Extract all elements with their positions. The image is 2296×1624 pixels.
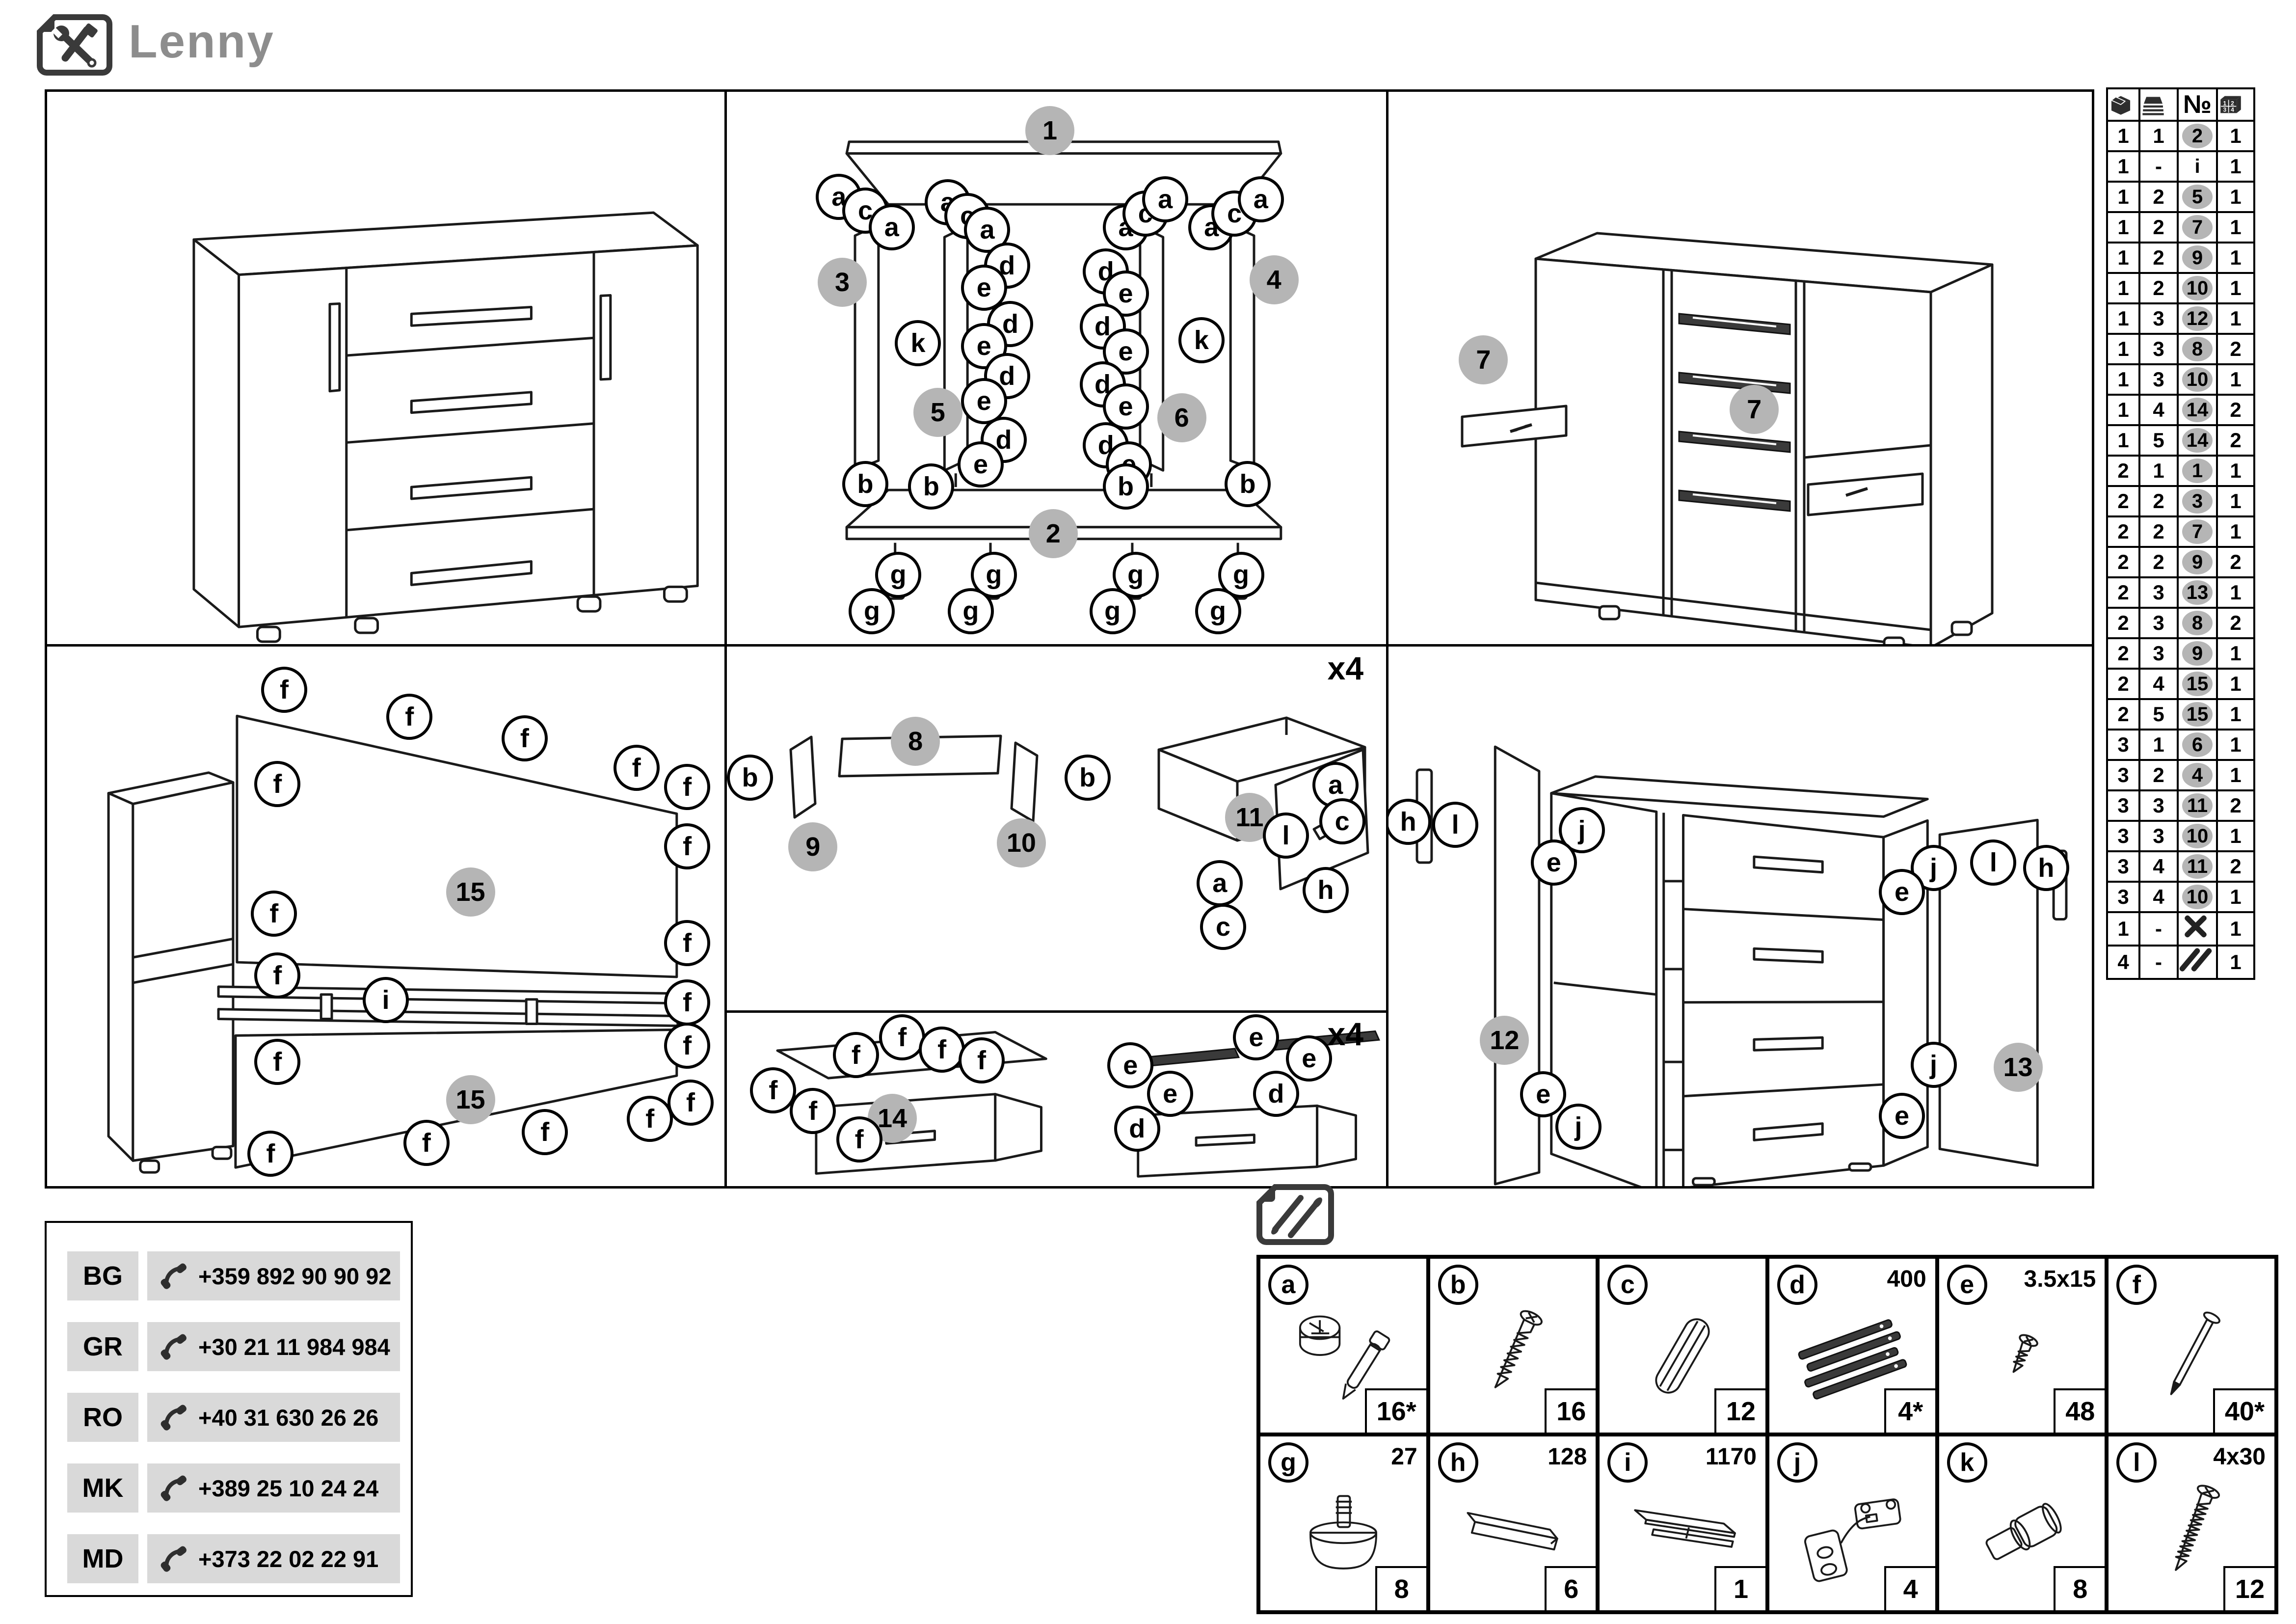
part-number-badge: 9 [2182, 641, 2213, 666]
callout: a [1197, 860, 1243, 906]
part-number-cell: 15 [2178, 699, 2217, 730]
sheet-number-cell: 4 [2139, 669, 2178, 699]
callout: l [1970, 839, 2016, 886]
quantity-badge: 16* [1365, 1388, 1428, 1435]
callout: 15 [446, 1075, 495, 1124]
quantity-cell: 1 [2217, 882, 2254, 912]
part-number-badge: 3 [2182, 489, 2213, 514]
box-number-cell: 2 [2107, 516, 2139, 547]
box-number-cell: 2 [2107, 608, 2139, 638]
box-number-cell: 3 [2107, 821, 2139, 851]
callout: f [403, 1120, 450, 1166]
callout: f [614, 745, 660, 791]
quantity-badge: 12 [2223, 1566, 2276, 1612]
part-number-cell: 2 [2178, 121, 2217, 151]
parts-table-row: 3 3 11 2 [2107, 790, 2254, 821]
quantity-cell: 1 [2217, 212, 2254, 243]
quantity-cell: 1 [2217, 730, 2254, 760]
part-number-badge: 9 [2182, 245, 2213, 270]
callout: e [1531, 839, 1577, 886]
box-number-cell: 3 [2107, 882, 2139, 912]
sheet-number-cell: 4 [2139, 882, 2178, 912]
part-number-badge: 4 [2182, 763, 2213, 787]
callout: f [251, 891, 297, 937]
quantity-badge: 8 [2054, 1566, 2107, 1612]
box-number-cell: 1 [2107, 273, 2139, 303]
sheet-number-cell: 1 [2139, 121, 2178, 151]
quantity-badge: 12 [1714, 1388, 1767, 1435]
part-letter-badge: c [1607, 1265, 1648, 1305]
panel-carcass-slides: 77 [1388, 92, 2092, 644]
phone-row: MK +389 25 10 24 24 [67, 1463, 400, 1513]
quantity-cell: 1 [2217, 577, 2254, 608]
part-number-cell: 9 [2178, 243, 2217, 273]
parts-table-header-row: № 1234 [2107, 88, 2254, 121]
part-number-cell: 14 [2178, 395, 2217, 425]
hardware-cell-i: i 1170 1 [1598, 1435, 1767, 1612]
callout: 6 [1157, 393, 1206, 442]
panel-exploded-carcass: 123456acaacaacaacadedededededededekkbbbb… [727, 92, 1388, 644]
hardware-cell-g: g 27 8 [1258, 1435, 1428, 1612]
part-spec: 3.5x15 [2024, 1266, 2096, 1293]
callout: e [1147, 1071, 1193, 1117]
phone-row: RO +40 31 630 26 26 [67, 1393, 400, 1442]
part-letter-badge: j [1777, 1442, 1817, 1483]
sheet-number-cell: - [2139, 946, 2178, 979]
part-number-badge [2182, 947, 2213, 973]
callout: 2 [1029, 509, 1078, 558]
quantity-cell: 1 [2217, 821, 2254, 851]
phone-row: BG +359 892 90 90 92 [67, 1251, 400, 1300]
callout: d [1114, 1106, 1160, 1152]
callout: f [522, 1109, 568, 1155]
box-number-cell: 2 [2107, 486, 2139, 516]
parts-table-row: 1 3 8 2 [2107, 334, 2254, 364]
part-letter-badge: e [1947, 1265, 1987, 1305]
callout: g [849, 588, 895, 634]
sheet-number-cell: 3 [2139, 334, 2178, 364]
part-number-cell: 9 [2178, 638, 2217, 669]
part-number-cell [2178, 946, 2217, 979]
sheets-icon [2139, 88, 2178, 121]
support-phone-box: BG +359 892 90 90 92 GR [45, 1221, 413, 1597]
part-number-cell: 10 [2178, 364, 2217, 395]
box-number-cell: 1 [2107, 151, 2139, 182]
svg-text:3: 3 [2223, 107, 2226, 113]
parts-table-row: 1 - i 1 [2107, 151, 2254, 182]
sheet-number-cell: 2 [2139, 760, 2178, 790]
parts-table-row: 2 5 15 1 [2107, 699, 2254, 730]
part-letter-badge: b [1438, 1265, 1478, 1305]
callout: f [254, 761, 300, 807]
callout: f [959, 1037, 1005, 1083]
carton-icon: 1234 [2217, 88, 2254, 121]
part-number-badge: 12 [2182, 306, 2213, 331]
sheet-number-cell: 3 [2139, 577, 2178, 608]
quantity-badge: 1 [1714, 1566, 1767, 1612]
hardware-cell-h: h 128 6 [1428, 1435, 1598, 1612]
callout: h [1388, 799, 1431, 845]
quantity-cell: 1 [2217, 699, 2254, 730]
part-letter-badge: l [2116, 1442, 2157, 1483]
sheet-number-cell: 3 [2139, 364, 2178, 395]
panel-drawer-assembly: x4981011bbaclahc x4 [727, 644, 1388, 1186]
quantity-cell: 1 [2217, 638, 2254, 669]
country-code: BG [67, 1251, 138, 1300]
assembly-instruction-sheet: { "title": "Lenny", "colors": { "step_ci… [0, 0, 2296, 1624]
callout: e [958, 441, 1004, 487]
callout: 5 [913, 388, 962, 437]
sheet-number-cell: 3 [2139, 790, 2178, 821]
panel-doors-final: 1213hljeejjejelh [1388, 644, 2092, 1186]
panel-back-panels: 1515iffffffffffffffffff [47, 644, 727, 1186]
phone-icon [160, 1262, 187, 1290]
callout: e [1107, 1042, 1153, 1088]
part-number-badge: 9 [2182, 550, 2213, 574]
callout-layer: x414fffffffeedeed [727, 1013, 1388, 1186]
callout-layer: 123456acaacaacaacadedededededededekkbbbb… [727, 92, 1386, 644]
part-spec: 1170 [1706, 1443, 1757, 1470]
tools-page-logo-icon [36, 14, 113, 77]
part-number-cell: 14 [2178, 425, 2217, 456]
sheet-number-cell: 5 [2139, 425, 2178, 456]
phone-number: +359 892 90 90 92 [147, 1251, 400, 1300]
callout: f [836, 1116, 882, 1163]
part-number-badge: 8 [2182, 337, 2213, 361]
part-number-cell: 15 [2178, 669, 2217, 699]
part-number-cell: 10 [2178, 273, 2217, 303]
box-number-cell: 3 [2107, 851, 2139, 882]
part-number-badge: 14 [2182, 428, 2213, 453]
box-number-cell: 2 [2107, 577, 2139, 608]
callout: e [1286, 1035, 1332, 1082]
callout: j [1555, 1104, 1602, 1150]
box-number-cell: 1 [2107, 182, 2139, 212]
box-number-cell: 2 [2107, 456, 2139, 486]
hardware-cell-k: k 8 [1937, 1435, 2107, 1612]
part-spec: 27 [1391, 1443, 1417, 1470]
quantity-cell: 2 [2217, 790, 2254, 821]
quantity-cell: 1 [2217, 303, 2254, 334]
part-number-cell: 3 [2178, 486, 2217, 516]
parts-table-row: 2 3 13 1 [2107, 577, 2254, 608]
quantity-cell: 1 [2217, 912, 2254, 946]
phone-icon [160, 1333, 187, 1360]
part-number-cell: 1 [2178, 456, 2217, 486]
part-letter-badge: k [1947, 1442, 1987, 1483]
phone-number: +373 22 02 22 91 [147, 1534, 400, 1583]
parts-table-row: 1 2 7 1 [2107, 212, 2254, 243]
callout: b [1103, 463, 1149, 510]
part-number-cell: 11 [2178, 790, 2217, 821]
sheet-number-cell: 2 [2139, 516, 2178, 547]
part-number-cell: 8 [2178, 334, 2217, 364]
parts-table-row: 1 3 10 1 [2107, 364, 2254, 395]
phone-icon [160, 1474, 187, 1502]
part-number-badge: 10 [2182, 885, 2213, 909]
callout: l [1263, 812, 1309, 859]
part-number-badge: 10 [2182, 276, 2213, 300]
callout: g [1090, 588, 1136, 634]
sheet-number-cell: 2 [2139, 547, 2178, 577]
box-number-cell: 2 [2107, 638, 2139, 669]
part-letter-badge: i [1607, 1442, 1648, 1483]
callout: f [386, 694, 432, 740]
box-number-cell: 1 [2107, 395, 2139, 425]
callout-layer: 1213hljeejjejelh [1388, 647, 2092, 1186]
parts-table-row: 1 2 9 1 [2107, 243, 2254, 273]
callout: x4 [1328, 652, 1363, 684]
callout: b [1225, 461, 1271, 507]
quantity-cell: 1 [2217, 516, 2254, 547]
parts-table-row: 2 4 15 1 [2107, 669, 2254, 699]
box-number-cell: 3 [2107, 790, 2139, 821]
sheet-number-cell: 2 [2139, 273, 2178, 303]
parts-table-row: 1 2 10 1 [2107, 273, 2254, 303]
part-number-cell: 12 [2178, 303, 2217, 334]
box-number-cell: 1 [2107, 303, 2139, 334]
parts-table-row: 1 4 14 2 [2107, 395, 2254, 425]
hardware-cell-l: l 4x30 12 [2107, 1435, 2276, 1612]
callout: 7 [1459, 335, 1508, 384]
box-number-cell: 1 [2107, 243, 2139, 273]
callout: g [948, 588, 994, 634]
sheet-number-cell: - [2139, 912, 2178, 946]
box-number-cell: 2 [2107, 699, 2139, 730]
part-number-badge: 15 [2182, 702, 2213, 727]
callout: 15 [446, 867, 495, 917]
callout: 12 [1480, 1016, 1529, 1065]
sheet-number-cell: 1 [2139, 456, 2178, 486]
phone-number-text: +389 25 10 24 24 [198, 1475, 378, 1502]
box-number-cell: 1 [2107, 121, 2139, 151]
sheet-number-cell: 2 [2139, 243, 2178, 273]
parts-table-row: 2 3 9 1 [2107, 638, 2254, 669]
screws-page-icon [1255, 1184, 1335, 1246]
callout: f [879, 1014, 925, 1060]
quantity-badge: 4* [1884, 1388, 1937, 1435]
part-number-badge [2182, 913, 2213, 940]
quantity-cell: 1 [2217, 946, 2254, 979]
callout: i [363, 977, 409, 1023]
parts-table-row: 3 3 10 1 [2107, 821, 2254, 851]
callout: e [1879, 869, 1925, 915]
country-code: MD [67, 1534, 138, 1583]
callout: b [908, 463, 954, 510]
parts-table-row: 1 3 12 1 [2107, 303, 2254, 334]
callout: a [1238, 176, 1284, 222]
phone-number-text: +373 22 02 22 91 [198, 1545, 378, 1572]
phone-number: +40 31 630 26 26 [147, 1393, 400, 1442]
part-number-badge: 13 [2182, 580, 2213, 605]
callout: j [1911, 1042, 1957, 1088]
box-number-cell: 1 [2107, 334, 2139, 364]
part-number-badge: 10 [2182, 367, 2213, 392]
callout: c [1200, 904, 1246, 950]
callout: f [664, 920, 710, 966]
sub-panel-drawer-bottom: x414fffffffeedeed [727, 1010, 1388, 1186]
callout: f [627, 1096, 673, 1142]
callout: e [1520, 1071, 1566, 1117]
sheet-number-cell: 3 [2139, 303, 2178, 334]
box-number-cell: 1 [2107, 364, 2139, 395]
country-code: RO [67, 1393, 138, 1442]
quantity-badge: 8 [1375, 1566, 1428, 1612]
callout: a [1142, 176, 1188, 222]
part-letter-badge: a [1268, 1265, 1308, 1305]
part-number-badge: 14 [2182, 398, 2213, 422]
hardware-cell-j: j 4 [1767, 1435, 1937, 1612]
box-number-cell: 1 [2107, 425, 2139, 456]
quantity-cell: 1 [2217, 760, 2254, 790]
callout: f [919, 1027, 965, 1073]
phone-row: GR +30 21 11 984 984 [67, 1322, 400, 1371]
quantity-badge: 40* [2213, 1388, 2276, 1435]
sheet-number-cell: 2 [2139, 486, 2178, 516]
callout: 9 [788, 822, 837, 871]
quantity-cell: 1 [2217, 243, 2254, 273]
country-code: MK [67, 1463, 138, 1513]
callout: f [261, 667, 307, 713]
box-number-cell: 1 [2107, 212, 2139, 243]
hardware-cell-a: a 16* [1258, 1257, 1428, 1435]
part-number-cell: 13 [2178, 577, 2217, 608]
callout: f [664, 823, 710, 869]
panel-assembled-overview [47, 92, 727, 644]
number-header: № [2178, 88, 2217, 121]
quantity-cell: 2 [2217, 851, 2254, 882]
parts-table-row: 1 1 2 1 [2107, 121, 2254, 151]
product-title: Lenny [129, 15, 275, 69]
callout: f [790, 1088, 836, 1134]
box-number-cell: 3 [2107, 760, 2139, 790]
quantity-cell: 1 [2217, 456, 2254, 486]
part-spec: 128 [1548, 1443, 1587, 1470]
box-number-cell: 2 [2107, 547, 2139, 577]
phone-icon [160, 1404, 187, 1431]
callout: b [727, 755, 773, 801]
part-number-badge: 6 [2182, 732, 2213, 757]
part-letter-badge: d [1777, 1265, 1817, 1305]
parts-table-row: 1 - 1 [2107, 912, 2254, 946]
sheet-number-cell: 3 [2139, 821, 2178, 851]
quantity-cell: 2 [2217, 608, 2254, 638]
sheet-number-cell: - [2139, 151, 2178, 182]
quantity-cell: 1 [2217, 364, 2254, 395]
part-number-cell: 6 [2178, 730, 2217, 760]
parts-table-row: 3 4 11 2 [2107, 851, 2254, 882]
parts-table-row: 2 2 9 2 [2107, 547, 2254, 577]
quantity-cell: 1 [2217, 486, 2254, 516]
parts-table-row: 3 2 4 1 [2107, 760, 2254, 790]
part-number-cell: 10 [2178, 882, 2217, 912]
sheet-number-cell: 4 [2139, 395, 2178, 425]
part-letter-badge: h [1438, 1442, 1478, 1483]
part-number-badge: 11 [2182, 854, 2213, 879]
parts-location-table: № 1234 1 1 2 1 1 - i 1 1 2 [2106, 87, 2255, 980]
part-number-badge: 10 [2182, 824, 2213, 848]
parts-table-row: 4 - 1 [2107, 946, 2254, 979]
callout: f [502, 715, 548, 761]
part-number-badge: 2 [2182, 124, 2213, 148]
callout: 1 [1025, 106, 1074, 155]
hardware-cell-e: e 3.5x15 48 [1937, 1257, 2107, 1435]
quantity-cell: 2 [2217, 425, 2254, 456]
sheet-number-cell: 4 [2139, 851, 2178, 882]
phone-number-text: +40 31 630 26 26 [198, 1404, 378, 1431]
callout: h [2023, 845, 2069, 891]
package-icon [2107, 88, 2139, 121]
quantity-badge: 48 [2054, 1388, 2107, 1435]
phone-number-text: +359 892 90 90 92 [198, 1263, 391, 1290]
part-number-badge: 15 [2182, 672, 2213, 696]
callout: f [247, 1131, 294, 1177]
callout: 3 [818, 258, 867, 307]
callout-layer: x4981011bbaclahc [727, 647, 1388, 1010]
part-number-cell: 10 [2178, 821, 2217, 851]
country-code: GR [67, 1322, 138, 1371]
part-number-cell: 7 [2178, 516, 2217, 547]
instruction-steps-grid: 123456acaacaacaacadedededededededekkbbbb… [45, 89, 2094, 1189]
box-number-cell: 4 [2107, 946, 2139, 979]
callout-layer: 1515iffffffffffffffffff [47, 647, 724, 1186]
parts-table-row: 2 1 1 1 [2107, 456, 2254, 486]
part-number-badge: 1 [2182, 459, 2213, 483]
part-number-badge: 7 [2182, 519, 2213, 544]
parts-table-row: 3 4 10 1 [2107, 882, 2254, 912]
part-number-badge: 8 [2182, 611, 2213, 635]
part-number-cell: 7 [2178, 212, 2217, 243]
part-number-badge: 5 [2182, 185, 2213, 209]
callout: k [1178, 317, 1225, 363]
quantity-cell: 1 [2217, 151, 2254, 182]
callout: f [833, 1032, 879, 1078]
callout-layer: 77 [1388, 92, 2092, 644]
callout: 4 [1250, 255, 1299, 304]
phone-number-text: +30 21 11 984 984 [198, 1333, 390, 1360]
callout: g [1195, 588, 1241, 634]
part-number-cell: 4 [2178, 760, 2217, 790]
callout: k [895, 320, 941, 366]
phone-number: +30 21 11 984 984 [147, 1322, 400, 1371]
callout: e [1879, 1093, 1925, 1139]
callout: f [664, 979, 710, 1026]
part-number-cell: 11 [2178, 851, 2217, 882]
sheet-number-cell: 2 [2139, 212, 2178, 243]
svg-text:4: 4 [2231, 107, 2234, 113]
callout: f [664, 1023, 710, 1069]
quantity-badge: 4 [1884, 1566, 1937, 1612]
callout: x4 [1328, 1018, 1363, 1050]
parts-table-row: 1 5 14 2 [2107, 425, 2254, 456]
part-spec: 4x30 [2213, 1443, 2266, 1470]
box-number-cell: 2 [2107, 669, 2139, 699]
sheet-number-cell: 3 [2139, 608, 2178, 638]
parts-table-row: 2 2 7 1 [2107, 516, 2254, 547]
callout-layer [47, 92, 724, 644]
part-number-cell: 9 [2178, 547, 2217, 577]
quantity-cell: 1 [2217, 273, 2254, 303]
parts-table-row: 2 2 3 1 [2107, 486, 2254, 516]
part-number-cell: 8 [2178, 608, 2217, 638]
quantity-cell: 1 [2217, 182, 2254, 212]
quantity-cell: 1 [2217, 669, 2254, 699]
part-number-cell: 5 [2178, 182, 2217, 212]
callout: d [1253, 1071, 1299, 1117]
sheet-number-cell: 3 [2139, 638, 2178, 669]
part-number-badge: 7 [2182, 215, 2213, 240]
callout: 13 [1994, 1043, 2043, 1092]
